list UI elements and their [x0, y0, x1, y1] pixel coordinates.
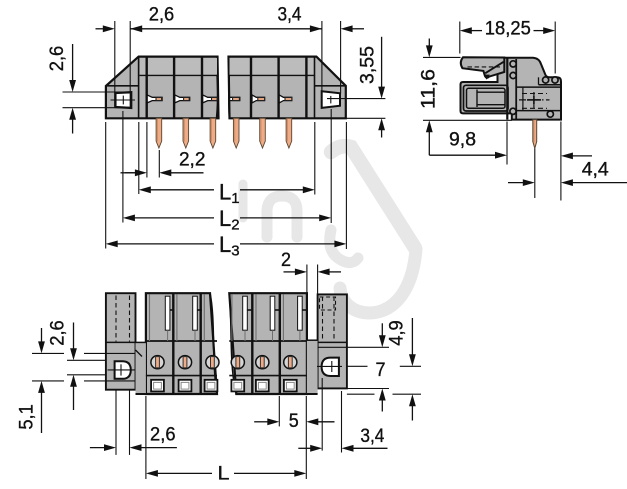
svg-text:18,25: 18,25: [485, 18, 531, 40]
svg-text:2,6: 2,6: [47, 320, 69, 346]
svg-text:2,6: 2,6: [46, 46, 68, 72]
svg-text:3,55: 3,55: [357, 46, 379, 84]
svg-text:5: 5: [289, 410, 299, 432]
svg-text:4,4: 4,4: [582, 159, 609, 181]
svg-text:5,1: 5,1: [16, 404, 38, 430]
svg-text:4,9: 4,9: [386, 320, 408, 346]
svg-text:3,4: 3,4: [360, 425, 384, 447]
svg-text:L: L: [218, 463, 230, 485]
svg-text:9,8: 9,8: [449, 128, 476, 150]
svg-text:2: 2: [281, 249, 291, 271]
svg-text:2,2: 2,2: [179, 149, 206, 171]
svg-text:7: 7: [376, 359, 386, 381]
svg-text:3,4: 3,4: [278, 4, 302, 26]
svg-text:11,6: 11,6: [418, 69, 440, 109]
svg-text:2,6: 2,6: [149, 4, 175, 26]
svg-text:2,6: 2,6: [150, 424, 176, 446]
